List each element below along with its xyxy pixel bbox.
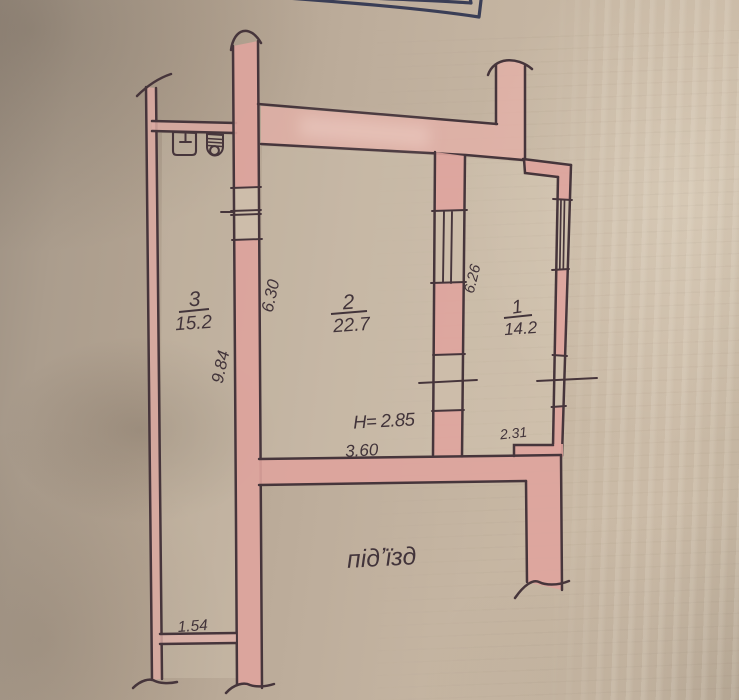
svg-text:2.31: 2.31	[498, 424, 528, 443]
svg-text:22.7: 22.7	[331, 314, 372, 338]
svg-text:H= 2.85: H= 2.85	[353, 408, 416, 432]
svg-text:15.2: 15.2	[174, 312, 213, 336]
svg-text:1.54: 1.54	[177, 617, 209, 636]
svg-text:2: 2	[341, 291, 356, 315]
svg-text:3.60: 3.60	[345, 440, 380, 461]
svg-text:14.2: 14.2	[503, 318, 538, 339]
svg-text:підʼїзд: підʼїзд	[346, 542, 417, 574]
svg-text:3: 3	[188, 288, 202, 312]
